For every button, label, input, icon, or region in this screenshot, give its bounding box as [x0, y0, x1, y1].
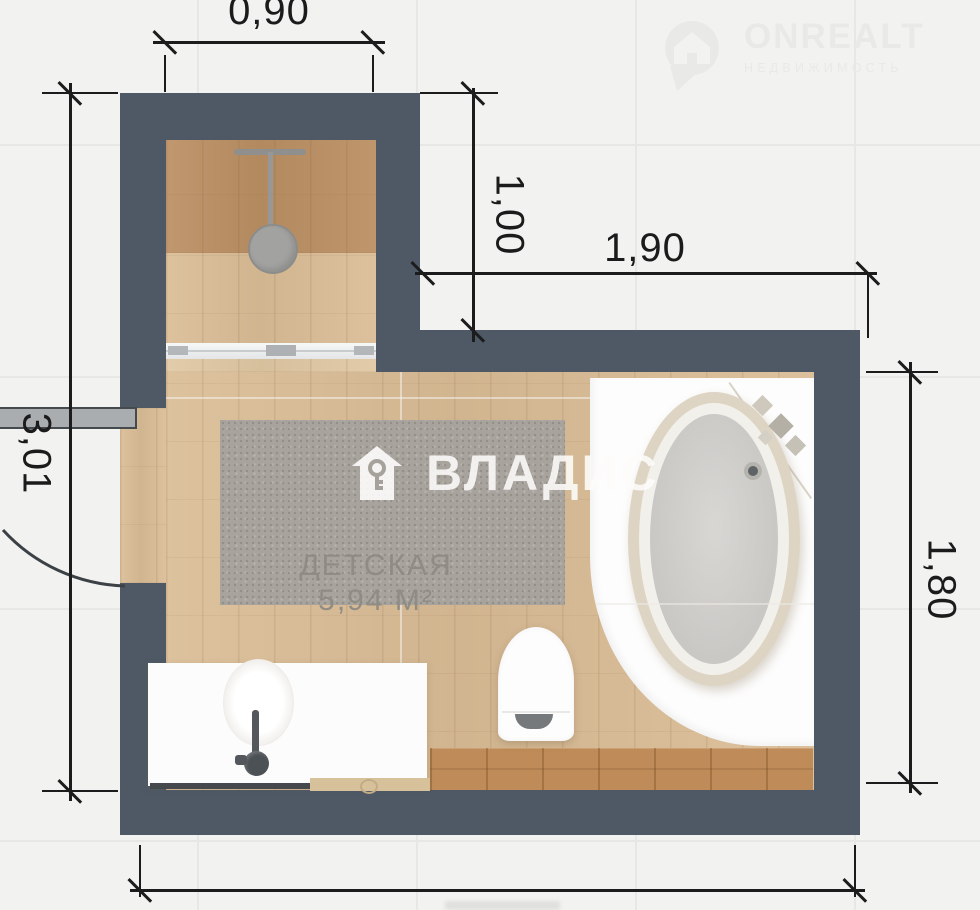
wall-bottom: [120, 790, 860, 835]
ext-line: [866, 371, 938, 373]
onrealt-text-block: ONREALT НЕДВИЖИМОСТЬ: [744, 18, 925, 75]
house-key-icon: [350, 444, 404, 502]
wood-shelf: [430, 748, 813, 790]
dim-main-width-label: 1,90: [585, 226, 705, 271]
dim-top-label: 0,90: [209, 0, 329, 34]
ext-line: [420, 92, 498, 94]
ext-line: [854, 845, 856, 897]
ext-line: [867, 273, 869, 338]
faucet-knob: [244, 751, 269, 776]
toilet-seat-seam: [502, 711, 570, 713]
shower-glass-partition: [166, 343, 376, 359]
ext-line: [42, 92, 118, 94]
wall-alcove-right: [376, 140, 420, 372]
onrealt-brand-text: ONREALT: [744, 18, 925, 56]
ext-line: [164, 55, 166, 92]
room-label: ДЕТСКАЯ 5,94 М²: [246, 548, 506, 618]
tub-drain: [748, 466, 758, 476]
onrealt-watermark: ONREALT НЕДВИЖИМОСТЬ: [660, 18, 925, 94]
glass-handle-right: [354, 346, 374, 355]
dim-line: [909, 362, 912, 793]
ext-line: [139, 845, 141, 897]
alcove-threshold-band: [166, 357, 376, 372]
dim-line: [415, 272, 877, 275]
dim-line: [130, 889, 865, 892]
faucet-side-nub: [235, 755, 247, 765]
dim-line: [69, 83, 72, 801]
wall-left-upper: [120, 93, 166, 408]
vladis-brand-text: ВЛАДИС: [426, 444, 660, 502]
bathtub-basin: [650, 414, 778, 664]
shower-head-icon: [248, 224, 298, 274]
dim-alcove-depth-label: 1,00: [487, 160, 532, 270]
ext-line: [372, 55, 374, 92]
room-name: ДЕТСКАЯ: [246, 548, 506, 583]
strip-knob: [360, 779, 378, 794]
tub-seam-line: [596, 603, 814, 605]
glass-handle-center: [266, 345, 296, 356]
onrealt-tagline-text: НЕДВИЖИМОСТЬ: [744, 61, 925, 75]
dim-right-height-label: 1,80: [919, 525, 964, 635]
vladis-watermark: ВЛАДИС: [350, 444, 660, 502]
floorplan-canvas: ONREALT НЕДВИЖИМОСТЬ ДЕТСКАЯ 5,94 М²: [0, 0, 980, 910]
wall-right: [814, 330, 860, 835]
glass-handle-left: [168, 346, 188, 355]
room-area: 5,94 М²: [246, 583, 506, 618]
ext-line: [42, 790, 118, 792]
dim-line: [472, 88, 475, 342]
dim-left-height-label: 3,01: [14, 399, 59, 509]
dim-bottom-label-clipped: [445, 901, 560, 910]
wall-main-top: [420, 330, 860, 372]
dim-top-line: [153, 41, 385, 44]
onrealt-pin-icon: [660, 18, 728, 94]
ext-line: [866, 782, 938, 784]
